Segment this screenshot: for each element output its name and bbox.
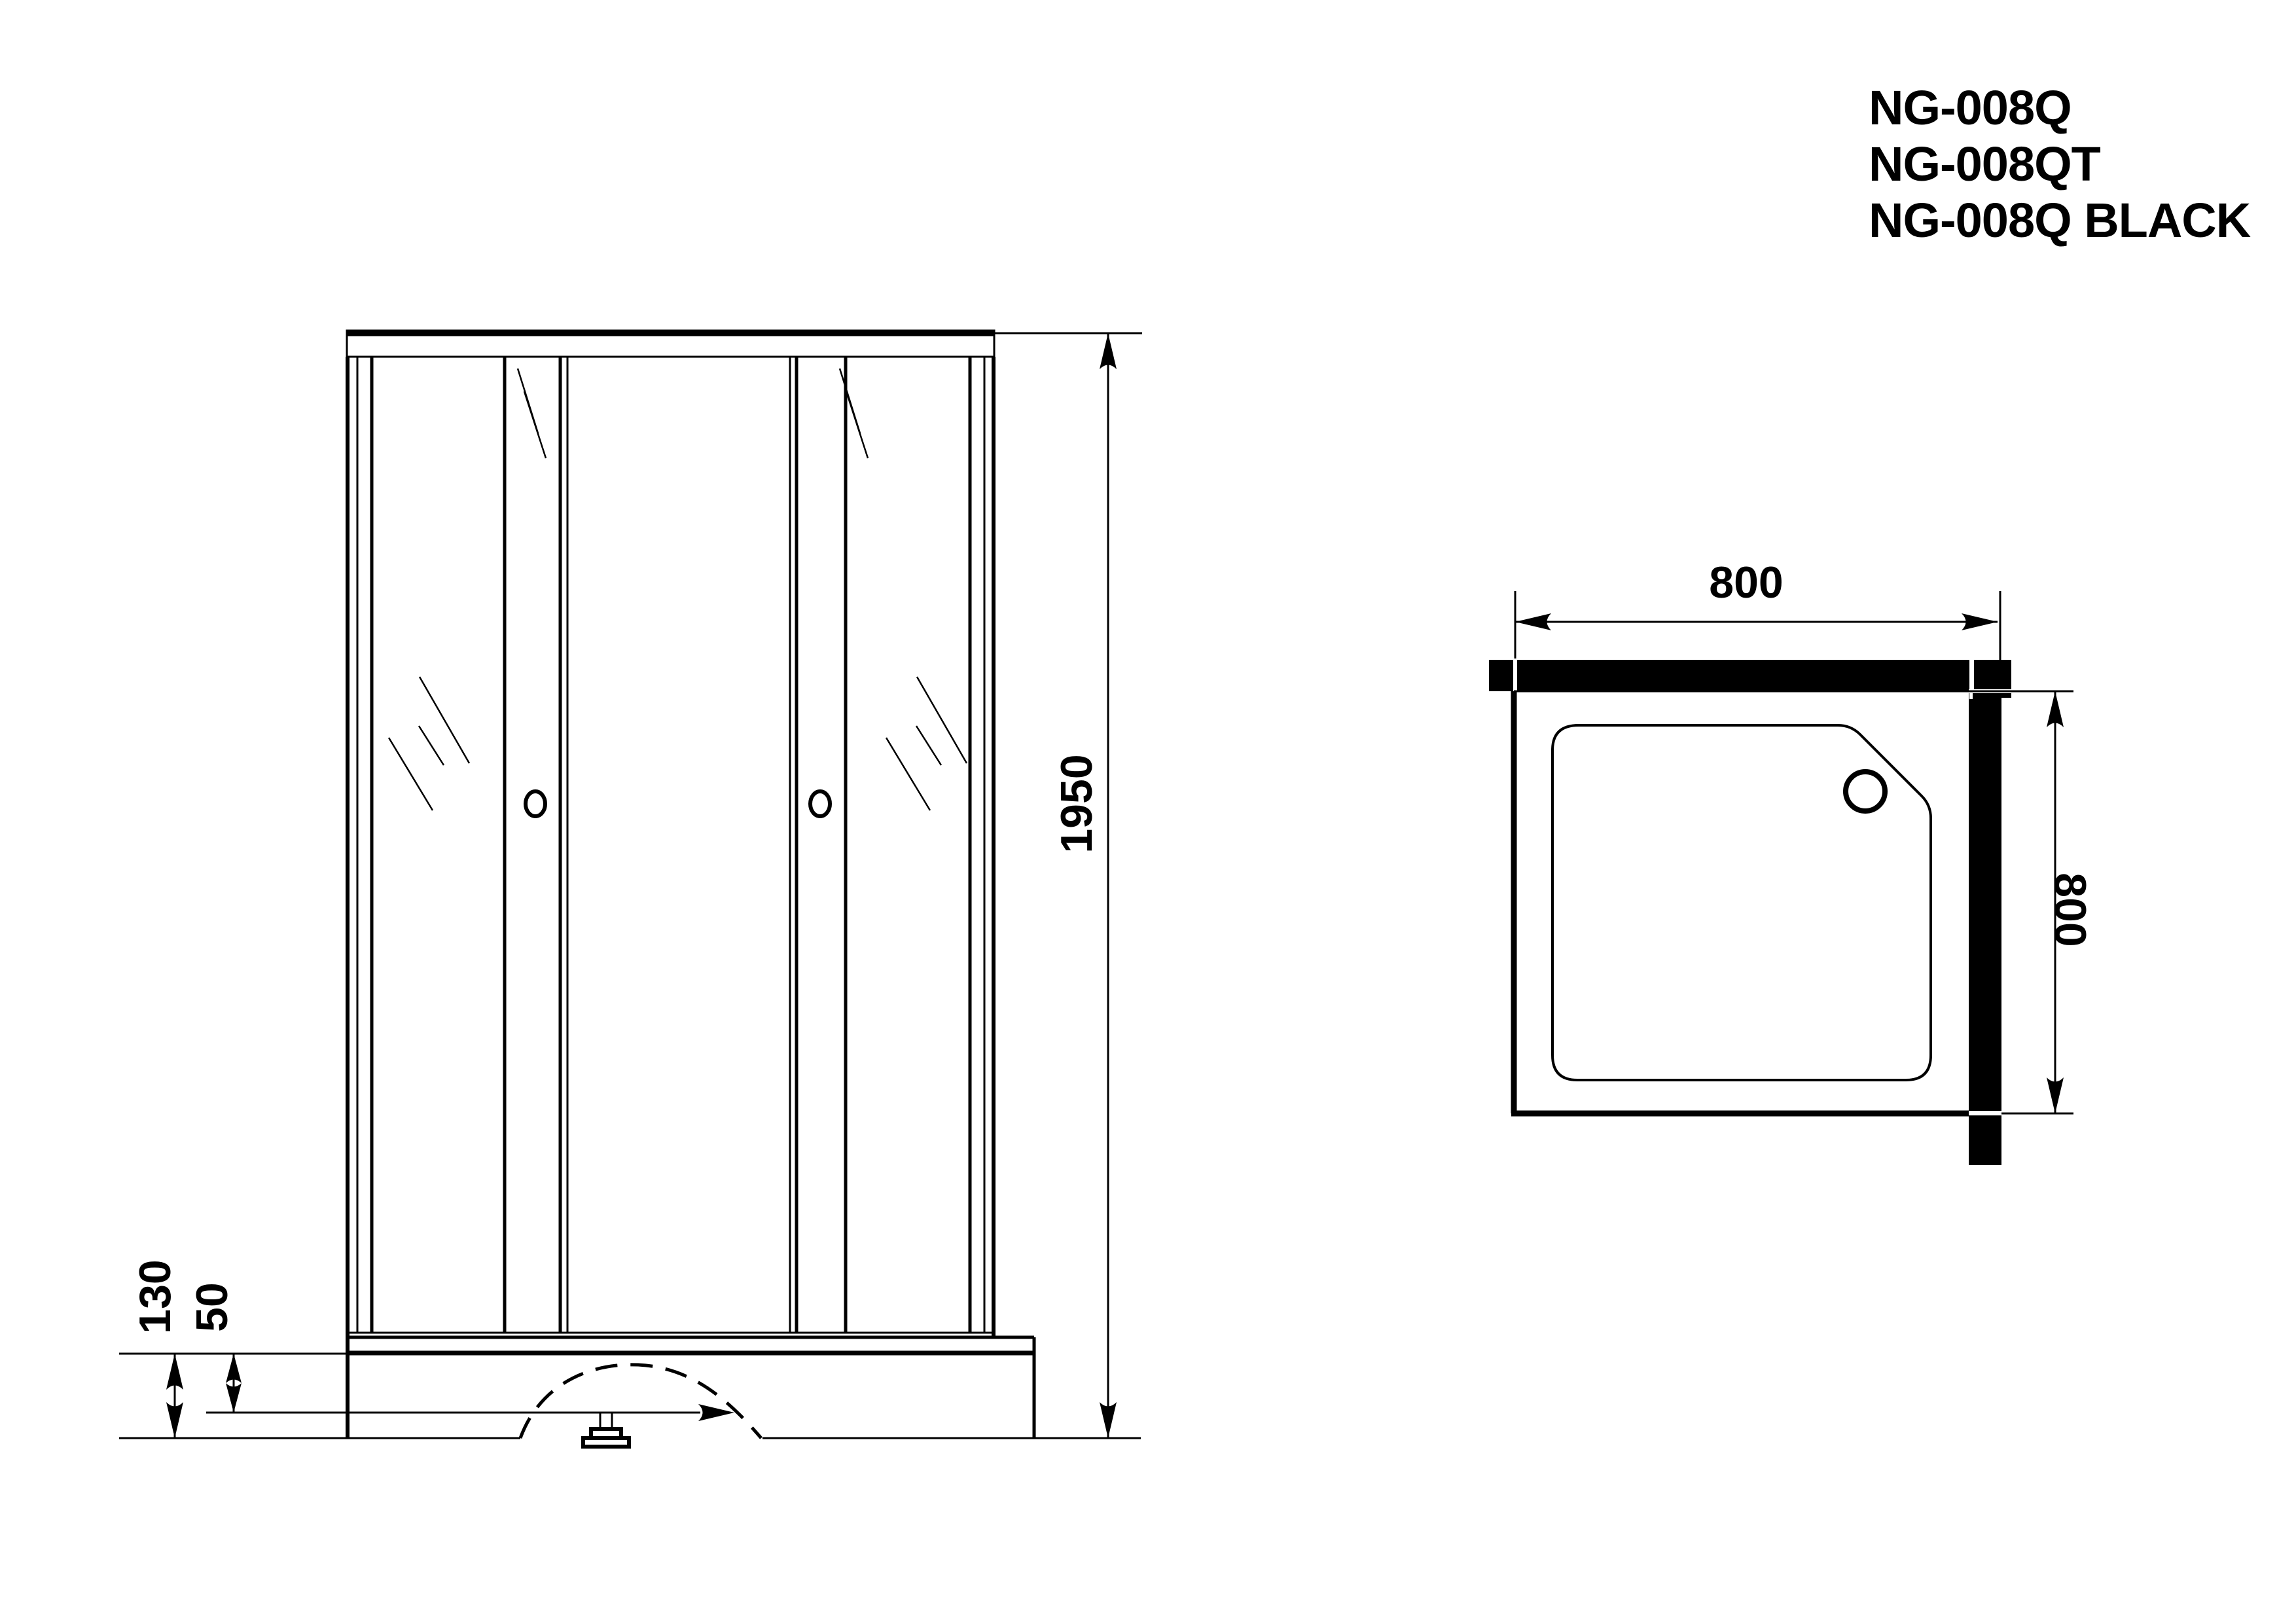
door-handle-right-icon (810, 791, 830, 816)
front-view: 1950 130 50 (119, 331, 1142, 1447)
extension-line-gap (1513, 659, 1517, 693)
hatch-line (916, 726, 941, 765)
extension-line-gap (1967, 1111, 2003, 1115)
arrowhead-up-icon (2047, 691, 2064, 727)
wall-profile-right (1969, 691, 2001, 1165)
shower-cabin-technical-drawing: 1950 130 50 (0, 0, 2296, 1624)
arrowhead-down-icon (1100, 1402, 1117, 1438)
label-plan-depth: 800 (2045, 873, 2095, 947)
drain-trap (583, 1413, 629, 1447)
dimension-plan-depth: 800 (2001, 691, 2095, 1113)
label-plan-width: 800 (1709, 558, 1783, 607)
arrowhead-right-icon (1962, 613, 1998, 630)
label-overall-height: 1950 (1052, 754, 1102, 853)
hatch-line (886, 738, 930, 810)
arrowhead-down-icon (226, 1383, 242, 1413)
arrowhead-down-icon (2047, 1077, 2064, 1113)
arrowhead-left-icon (1515, 613, 1551, 630)
drawing-page: 1950 130 50 (0, 0, 2296, 1624)
glass-hatch-door-right (840, 369, 868, 458)
hatch-line (389, 738, 433, 810)
arrowhead-down-icon (166, 1402, 183, 1438)
wall-profile-top (1489, 660, 1971, 691)
drain-trap-lower (583, 1438, 629, 1447)
door-handle-left-icon (526, 791, 545, 816)
drain-hole-icon (1846, 772, 1885, 811)
hatch-line (524, 391, 546, 458)
dimension-tray-height: 130 (130, 1259, 183, 1438)
glass-hatch-left-panel (389, 677, 469, 810)
dimension-overall-height: 1950 (1052, 333, 1117, 1438)
glass-hatch-right-panel (886, 677, 967, 810)
model-name-1: NG-008Q (1869, 81, 2072, 135)
arrowhead-up-icon (226, 1354, 242, 1383)
label-inner-height: 50 (187, 1282, 237, 1332)
glass-hatch-door-left (518, 369, 546, 458)
model-name-3: NG-008Q BLACK (1869, 193, 2251, 247)
arrowhead-up-icon (1100, 333, 1117, 369)
plan-view: 800 800 (1489, 558, 2095, 1165)
hatch-line (846, 391, 868, 458)
hatch-line (420, 677, 469, 763)
arrowhead-up-icon (166, 1354, 183, 1390)
hatch-line (419, 726, 444, 765)
model-name-2: NG-008QT (1869, 137, 2101, 191)
tray-basin-outline (1552, 725, 1931, 1080)
title-block: NG-008Q NG-008QT NG-008Q BLACK (1869, 81, 2251, 247)
label-tray-height: 130 (130, 1259, 180, 1333)
drain-recess-arc (520, 1365, 761, 1438)
dimension-inner-height: 50 (187, 1282, 242, 1413)
hatch-line (917, 677, 967, 763)
